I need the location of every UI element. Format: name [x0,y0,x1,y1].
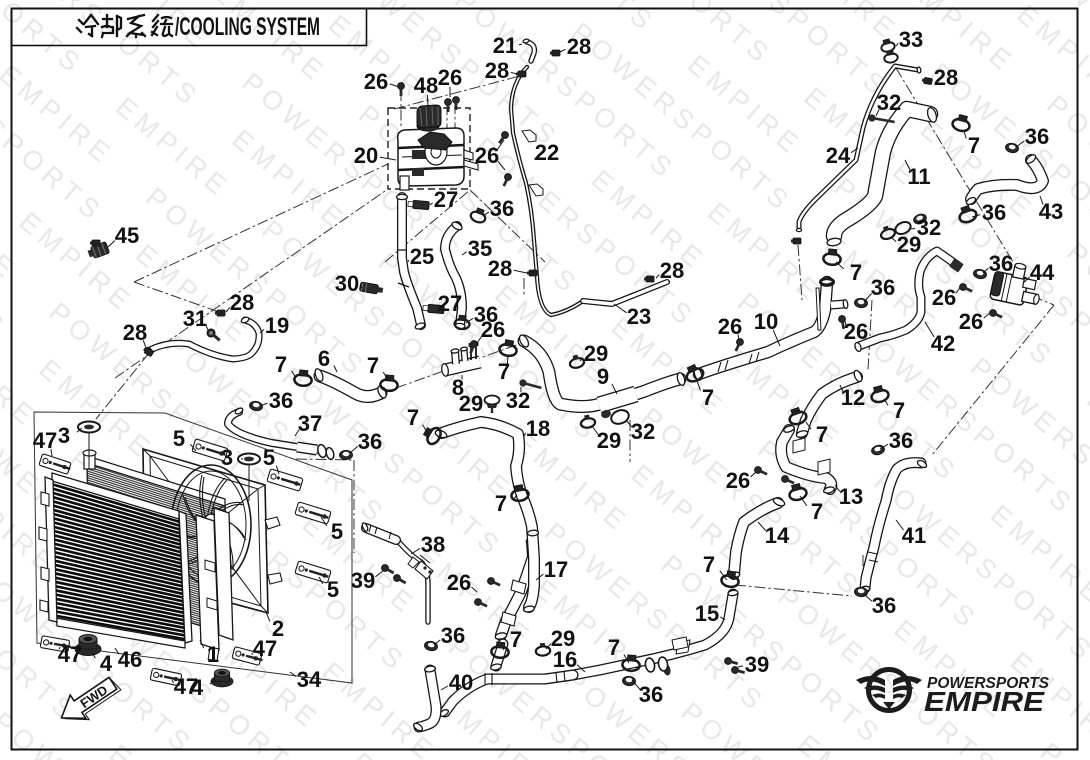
svg-text:30: 30 [335,271,359,296]
svg-text:25: 25 [410,244,434,269]
svg-text:28: 28 [934,65,958,90]
svg-text:16: 16 [553,647,577,672]
svg-text:12: 12 [841,385,865,410]
svg-text:47: 47 [58,642,82,667]
svg-text:EMPIRE: EMPIRE [924,686,1045,717]
svg-text:38: 38 [421,532,445,557]
svg-text:26: 26 [447,570,471,595]
svg-text:7: 7 [811,499,823,524]
svg-text:26: 26 [844,319,868,344]
svg-text:36: 36 [639,682,663,707]
svg-text:36: 36 [989,251,1013,276]
svg-text:4: 4 [191,675,204,700]
svg-text:26: 26 [726,468,750,493]
svg-text:34: 34 [297,667,322,692]
svg-text:7: 7 [703,552,715,577]
svg-text:32: 32 [917,215,941,240]
svg-text:17: 17 [544,557,568,582]
svg-text:36: 36 [1025,124,1049,149]
svg-text:36: 36 [474,302,498,327]
svg-text:23: 23 [627,304,651,329]
svg-text:45: 45 [115,223,139,248]
svg-text:36: 36 [358,429,382,454]
svg-text:7: 7 [816,422,828,447]
svg-text:4: 4 [100,651,113,676]
svg-text:42: 42 [931,331,955,356]
svg-text:21: 21 [493,33,517,58]
svg-text:26: 26 [959,309,983,334]
svg-text:28: 28 [567,34,591,59]
svg-text:5: 5 [263,445,275,470]
svg-text:13: 13 [839,484,863,509]
svg-text:28: 28 [230,290,254,315]
svg-text:39: 39 [745,652,769,677]
svg-text:32: 32 [877,90,901,115]
svg-text:37: 37 [298,411,322,436]
svg-text:14: 14 [765,523,790,548]
svg-text:7: 7 [367,353,379,378]
svg-text:29: 29 [459,391,483,416]
svg-text:41: 41 [902,523,926,548]
svg-text:7: 7 [510,627,522,652]
svg-text:5: 5 [327,577,339,602]
svg-text:7: 7 [608,635,620,660]
svg-text:18: 18 [526,416,550,441]
svg-text:36: 36 [982,200,1006,225]
svg-text:27: 27 [434,187,458,212]
svg-text:22: 22 [535,140,559,165]
svg-text:/COOLING SYSTEM: /COOLING SYSTEM [175,13,320,41]
svg-text:36: 36 [490,196,514,221]
svg-text:7: 7 [968,133,980,158]
svg-text:36: 36 [872,593,896,618]
svg-text:15: 15 [695,601,719,626]
svg-text:39: 39 [351,568,375,593]
svg-text:36: 36 [871,275,895,300]
svg-text:47: 47 [253,636,277,661]
svg-text:9: 9 [597,364,609,389]
svg-text:29: 29 [584,341,608,366]
svg-text:36: 36 [889,428,913,453]
svg-text:7: 7 [850,260,862,285]
svg-text:7: 7 [275,352,287,377]
svg-text:29: 29 [597,428,621,453]
svg-text:24: 24 [826,143,851,168]
svg-text:26: 26 [932,285,956,310]
svg-text:31: 31 [183,306,207,331]
svg-text:26: 26 [438,65,462,90]
svg-text:26: 26 [364,69,388,94]
svg-text:3: 3 [58,423,70,448]
svg-text:5: 5 [173,426,185,451]
svg-text:46: 46 [118,647,142,672]
svg-text:40: 40 [449,670,473,695]
svg-text:27: 27 [438,291,462,316]
svg-text:28: 28 [485,58,509,83]
svg-text:20: 20 [354,143,378,168]
svg-text:26: 26 [475,143,499,168]
svg-text:7: 7 [702,385,714,410]
svg-text:36: 36 [441,623,465,648]
svg-text:3: 3 [221,445,233,470]
svg-text:5: 5 [331,519,343,544]
svg-text:33: 33 [899,27,923,52]
svg-text:28: 28 [660,258,684,283]
svg-text:7: 7 [893,398,905,423]
svg-text:7: 7 [498,359,510,384]
svg-text:11: 11 [907,164,930,189]
svg-text:6: 6 [318,346,330,371]
svg-text:10: 10 [754,309,778,334]
svg-text:7: 7 [407,405,419,430]
svg-text:19: 19 [265,313,289,338]
svg-text:44: 44 [1030,260,1055,285]
svg-text:7: 7 [495,491,507,516]
svg-text:48: 48 [414,73,438,98]
svg-text:1: 1 [207,642,219,667]
svg-text:32: 32 [631,419,655,444]
svg-text:28: 28 [488,256,512,281]
svg-text:36: 36 [269,388,293,413]
svg-text:47: 47 [33,428,57,453]
svg-text:32: 32 [506,388,530,413]
